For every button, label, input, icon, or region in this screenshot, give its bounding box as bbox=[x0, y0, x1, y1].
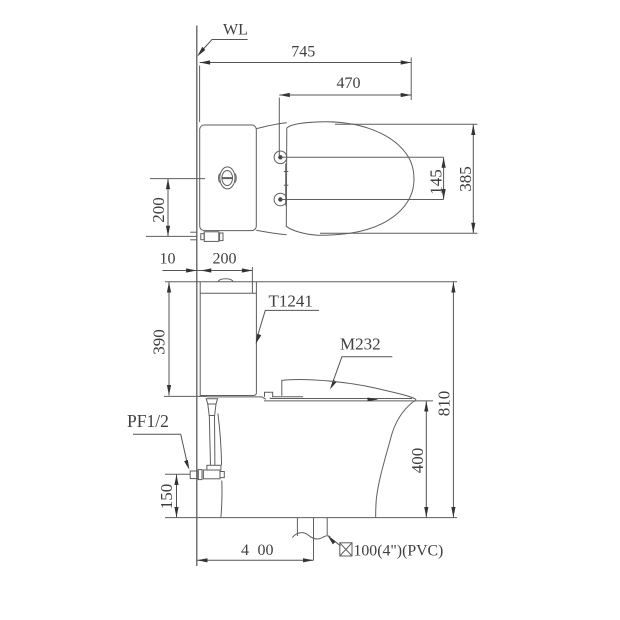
svg-text:810: 810 bbox=[435, 391, 454, 417]
svg-text:WL: WL bbox=[223, 22, 248, 39]
svg-text:150: 150 bbox=[157, 484, 176, 510]
svg-text:00: 00 bbox=[258, 542, 274, 559]
svg-text:745: 745 bbox=[291, 44, 315, 61]
svg-text:200: 200 bbox=[149, 197, 168, 223]
svg-text:400: 400 bbox=[408, 448, 427, 474]
svg-text:200: 200 bbox=[213, 251, 237, 268]
svg-text:145: 145 bbox=[426, 169, 445, 195]
svg-text:390: 390 bbox=[150, 329, 169, 355]
svg-text:10: 10 bbox=[160, 251, 176, 268]
svg-text:100(4")(PVC): 100(4")(PVC) bbox=[354, 542, 444, 559]
svg-text:M232: M232 bbox=[340, 335, 381, 354]
svg-text:385: 385 bbox=[456, 166, 475, 192]
svg-text:PF1/2: PF1/2 bbox=[127, 411, 169, 431]
svg-text:470: 470 bbox=[337, 75, 361, 92]
svg-text:4: 4 bbox=[241, 542, 249, 559]
svg-text:T1241: T1241 bbox=[269, 292, 313, 311]
